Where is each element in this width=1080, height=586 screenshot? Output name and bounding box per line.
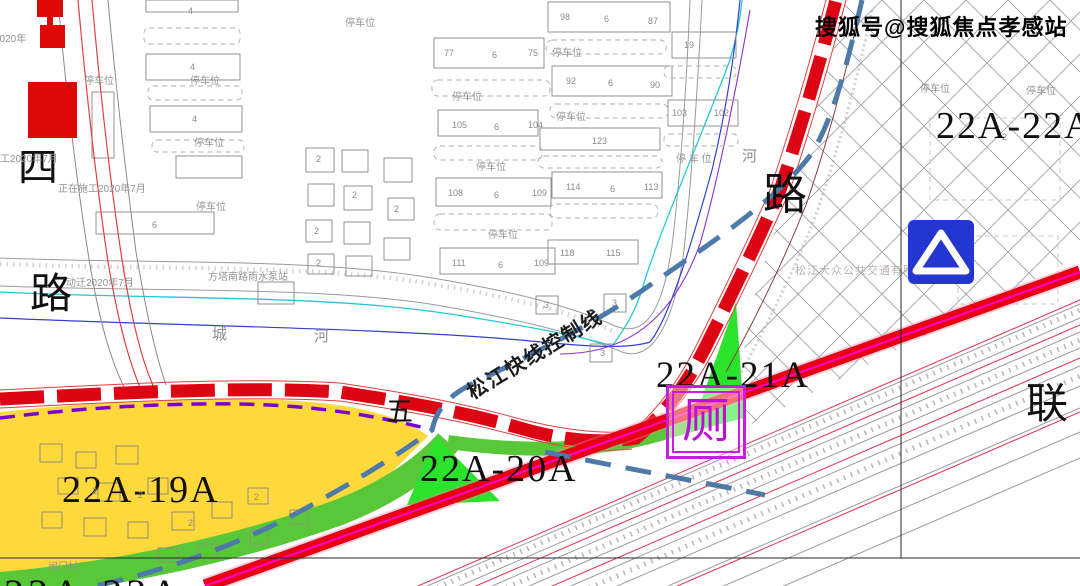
map-annotation: 6 [494, 122, 499, 132]
map-annotation: 102 [714, 108, 729, 118]
map-annotation: 2 [138, 490, 143, 500]
map-annotation: 停车位 [920, 80, 950, 95]
map-annotation: 6 [494, 190, 499, 200]
map-annotation: 4 [190, 62, 195, 72]
map-annotation: 停车位 [476, 158, 506, 173]
planning-map: 搜狐号@搜狐焦点孝感站 22A-19A 22A-20A 22A-21A 22A-… [0, 0, 1080, 586]
map-annotation: 停车位 [345, 14, 375, 29]
map-annotation: 109 [532, 188, 547, 198]
map-annotation: 114 [566, 182, 580, 192]
road-name-char-lian: 联 [1026, 370, 1068, 431]
map-annotation: 动迁2020年7月 [66, 274, 134, 289]
map-annotation: 2 [1002, 132, 1007, 142]
road-name-char-lu-river: 路 [763, 158, 807, 222]
map-annotation: 2020年 [0, 30, 26, 45]
map-annotation: 闸门村 [48, 558, 78, 573]
map-annotation: 正在施工2020年7月 [0, 150, 58, 165]
map-annotation: 92 [566, 76, 576, 86]
map-annotation: 停车位 [452, 88, 482, 103]
map-annotation: 停车位 [556, 108, 586, 123]
map-annotation: 正在施工2020年7月 [58, 180, 146, 195]
map-annotation: 6 [492, 50, 497, 60]
map-annotation: 3 [600, 348, 605, 358]
map-annotation: 111 [452, 258, 466, 268]
map-annotation: 河 [742, 145, 760, 166]
map-annotation: 停车位 [194, 134, 224, 149]
map-annotation: 103 [672, 108, 687, 118]
map-annotation: 停车位 [488, 226, 518, 241]
map-annotation: 109 [534, 258, 549, 268]
map-annotation: 2 [352, 190, 357, 200]
map-annotation: 98 [560, 12, 570, 22]
road-name-char-lu-left: 路 [30, 260, 72, 321]
river-channel [0, 0, 750, 354]
map-annotation: 停车位 [190, 72, 220, 87]
map-annotation: 3 [612, 298, 617, 308]
toilet-char: 厕 [682, 398, 730, 446]
map-annotation: 108 [448, 188, 463, 198]
parking-areas [144, 28, 738, 230]
map-annotation: 停车位 [552, 44, 582, 59]
map-annotation: 6 [608, 78, 613, 88]
watermark: 搜狐号@搜狐焦点孝感站 [815, 10, 1067, 42]
map-annotation: 104 [528, 120, 543, 130]
map-annotation: 87 [648, 16, 658, 26]
map-annotation: 77 [444, 48, 454, 58]
map-annotation: 河 [314, 325, 332, 346]
map-annotation: 城 [212, 323, 230, 344]
map-annotation: 6 [152, 220, 157, 230]
map-annotation: 2 [314, 226, 319, 236]
map-annotation: 19 [684, 40, 694, 50]
map-annotation: 118 [560, 248, 574, 258]
map-annotation: 113 [644, 182, 658, 192]
map-annotation: 2 [316, 154, 321, 164]
map-annotation: 2 [316, 258, 321, 268]
map-annotation: 90 [650, 80, 660, 90]
map-annotation: 105 [452, 120, 467, 130]
parcel-label-22A-23A-partial: 22A-23A [4, 570, 183, 586]
map-annotation: 6 [610, 184, 615, 194]
map-annotation: 2 [92, 486, 97, 496]
map-annotation: 4 [192, 114, 197, 124]
map-annotation: 2 [254, 492, 259, 502]
map-annotation: 123 [592, 136, 607, 146]
map-annotation: 4 [188, 6, 193, 16]
warning-sign [908, 220, 974, 284]
parcel-label-22A-20A: 22A-20A [420, 447, 578, 491]
left-road [58, 0, 166, 395]
map-annotation: 6 [498, 260, 503, 270]
triangle-icon [908, 220, 974, 284]
map-annotation: 2 [394, 204, 399, 214]
red-buildings [28, 0, 77, 138]
map-annotation: 6 [604, 14, 609, 24]
road-name-char-wu: 五 [386, 390, 413, 429]
parcel-label-22A-22A: 22A-22A [936, 104, 1080, 148]
map-annotation: 停车位 [84, 72, 114, 87]
map-annotation: 停 车 位 [676, 150, 712, 165]
map-annotation: 方塔南路雨水泵站 [208, 268, 288, 283]
map-annotation: 停车位 [1026, 82, 1056, 97]
map-annotation: 75 [528, 48, 538, 58]
toilet-symbol-inner-frame: 厕 [672, 391, 740, 453]
map-annotation: 停车位 [196, 198, 226, 213]
map-annotation: 3 [544, 300, 549, 310]
toilet-symbol: 厕 [666, 385, 746, 459]
map-annotation: 115 [606, 248, 620, 258]
map-annotation: 2 [188, 518, 193, 528]
